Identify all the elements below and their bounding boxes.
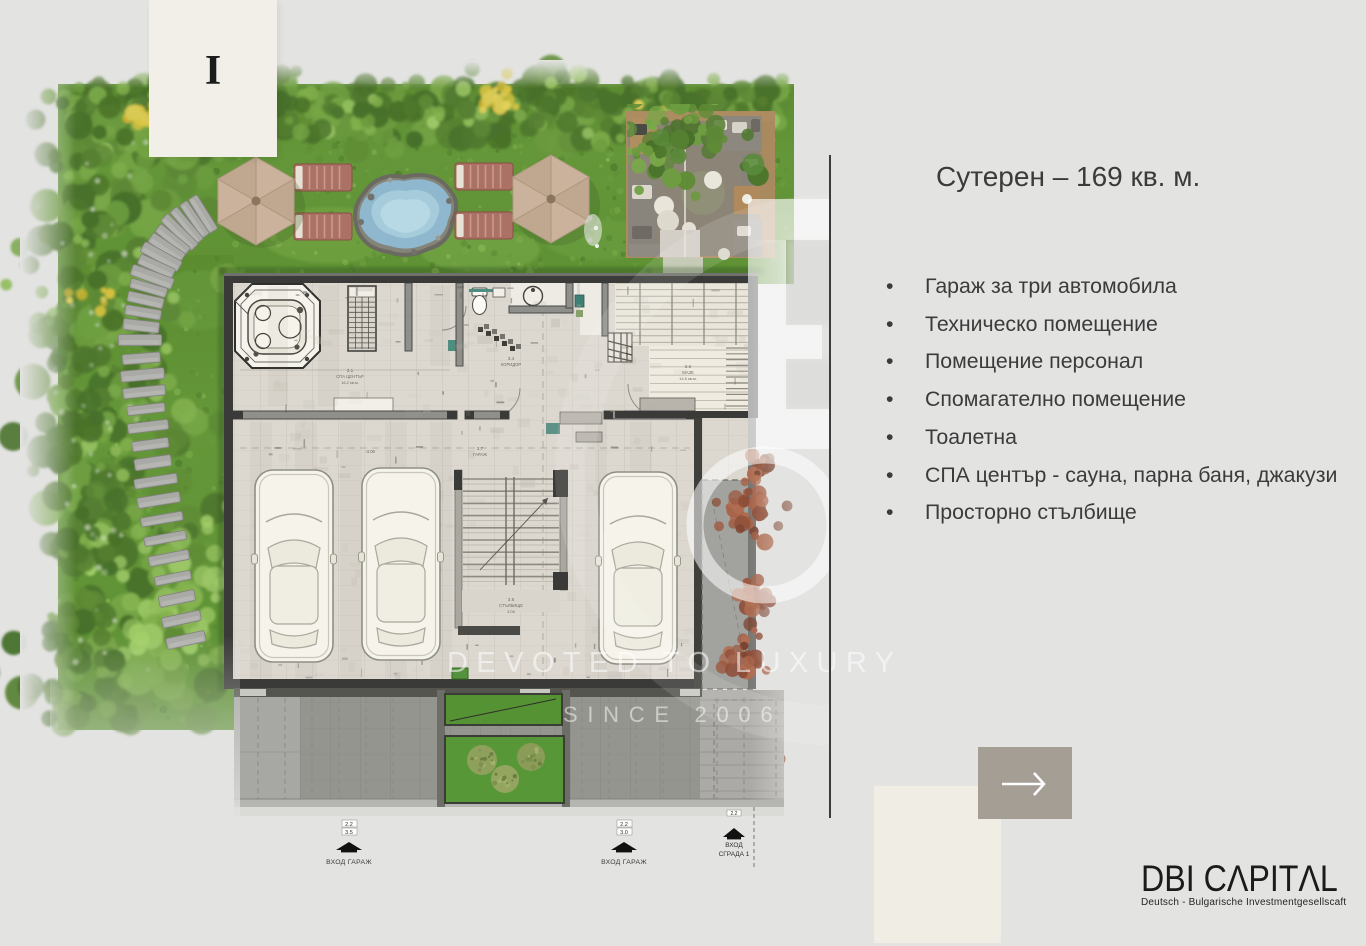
svg-text:3.0: 3.0 — [620, 830, 628, 836]
svg-text:3.06: 3.06 — [507, 609, 516, 614]
svg-text:ВХОД: ВХОД — [725, 842, 743, 849]
svg-text:2.2: 2.2 — [345, 822, 353, 828]
svg-text:3.5: 3.5 — [508, 597, 515, 602]
svg-text:-3.06: -3.06 — [365, 449, 376, 454]
svg-text:СТЪЛБИЩЕ: СТЪЛБИЩЕ — [499, 603, 523, 608]
svg-text:3.6: 3.6 — [685, 364, 692, 369]
svg-text:3.1: 3.1 — [347, 368, 354, 373]
svg-text:2.2: 2.2 — [620, 822, 628, 828]
svg-text:ВХОД ГАРАЖ: ВХОД ГАРАЖ — [326, 859, 372, 866]
svg-text:ГАРАЖ: ГАРАЖ — [473, 452, 487, 457]
svg-text:3.4: 3.4 — [508, 356, 515, 361]
svg-text:SINCE 2006: SINCE 2006 — [563, 702, 782, 727]
svg-text:СПА ЦЕНТЪР: СПА ЦЕНТЪР — [336, 374, 364, 379]
svg-text:3.5: 3.5 — [345, 830, 353, 836]
svg-text:3.7: 3.7 — [477, 446, 484, 451]
svg-text:КОРИДОР: КОРИДОР — [501, 362, 522, 367]
svg-text:2.2: 2.2 — [731, 811, 738, 817]
svg-text:МАЗЕ: МАЗЕ — [682, 370, 694, 375]
svg-text:16.2 кв.м.: 16.2 кв.м. — [341, 380, 359, 385]
svg-text:ВХОД ГАРАЖ: ВХОД ГАРАЖ — [601, 859, 647, 866]
svg-text:14.6 кв.м.: 14.6 кв.м. — [679, 376, 697, 381]
svg-text:СГРАДА 1: СГРАДА 1 — [719, 851, 750, 858]
svg-text:DEVOTED TO LUXURY: DEVOTED TO LUXURY — [447, 647, 902, 679]
